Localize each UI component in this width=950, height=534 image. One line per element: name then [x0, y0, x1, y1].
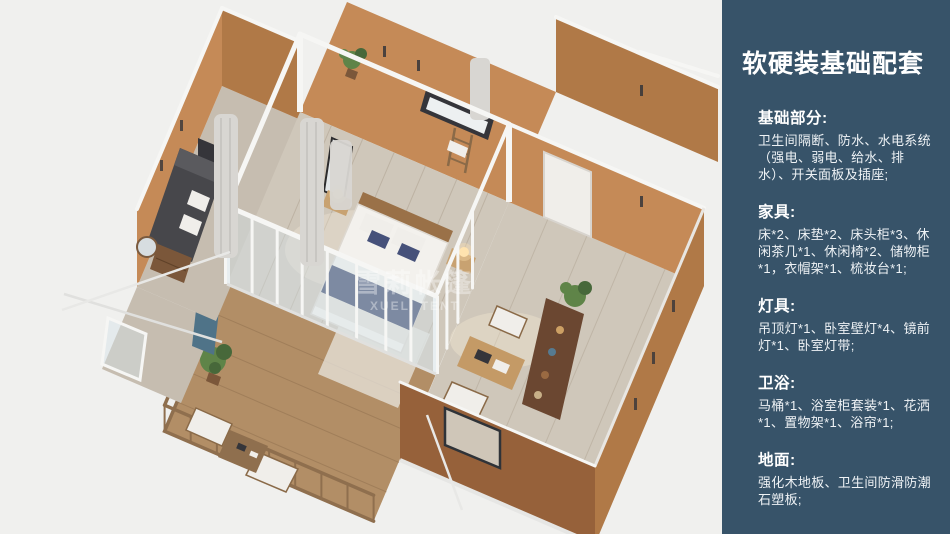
- frame-post: [506, 124, 512, 202]
- curtain: [330, 140, 352, 210]
- watermark-cn: 雪莉帐篷: [355, 268, 475, 298]
- spec-section-basic: 基础部分: 卫生间隔断、防水、水电系统（强电、弱电、给水、排水）、开关面板及插座…: [758, 106, 932, 183]
- watermark-en: XUELI TENT: [370, 299, 460, 313]
- spec-section-bath: 卫浴: 马桶*1、浴室柜套装*1、花洒*1、置物架*1、浴帘*1;: [758, 371, 932, 431]
- section-heading: 灯具:: [758, 294, 932, 316]
- spec-section-floor: 地面: 强化木地板、卫生间防滑防潮石塑板;: [758, 448, 932, 508]
- section-heading: 基础部分:: [758, 106, 932, 128]
- curtain: [300, 118, 324, 266]
- section-body: 吊顶灯*1、卧室壁灯*4、镜前灯*1、卧室灯带;: [758, 320, 932, 354]
- sidebar-title: 软硬装基础配套: [742, 44, 932, 80]
- spec-section-furniture: 家具: 床*2、床垫*2、床头柜*3、休闲茶几*1、休闲椅*2、储物柜*1，衣帽…: [758, 200, 932, 277]
- frame-post: [297, 34, 303, 112]
- floorplan-render-area: 雪莉帐篷 XUELI TENT: [0, 0, 722, 534]
- curtain: [214, 114, 238, 258]
- spec-section-lighting: 灯具: 吊顶灯*1、卧室壁灯*4、镜前灯*1、卧室灯带;: [758, 294, 932, 354]
- section-body: 卫生间隔断、防水、水电系统（强电、弱电、给水、排水）、开关面板及插座;: [758, 132, 932, 183]
- section-body: 强化木地板、卫生间防滑防潮石塑板;: [758, 474, 932, 508]
- spec-sidebar: 软硬装基础配套 基础部分: 卫生间隔断、防水、水电系统（强电、弱电、给水、排水）…: [722, 0, 950, 534]
- section-body: 马桶*1、浴室柜套装*1、花洒*1、置物架*1、浴帘*1;: [758, 397, 932, 431]
- slide: 雪莉帐篷 XUELI TENT 软硬装基础配套 基础部分: 卫生间隔断、防水、水…: [0, 0, 950, 534]
- section-heading: 家具:: [758, 200, 932, 222]
- floorplan-render: 雪莉帐篷 XUELI TENT: [0, 0, 722, 534]
- section-heading: 卫浴:: [758, 371, 932, 393]
- section-heading: 地面:: [758, 448, 932, 470]
- section-body: 床*2、床垫*2、床头柜*3、休闲茶几*1、休闲椅*2、储物柜*1，衣帽架*1、…: [758, 226, 932, 277]
